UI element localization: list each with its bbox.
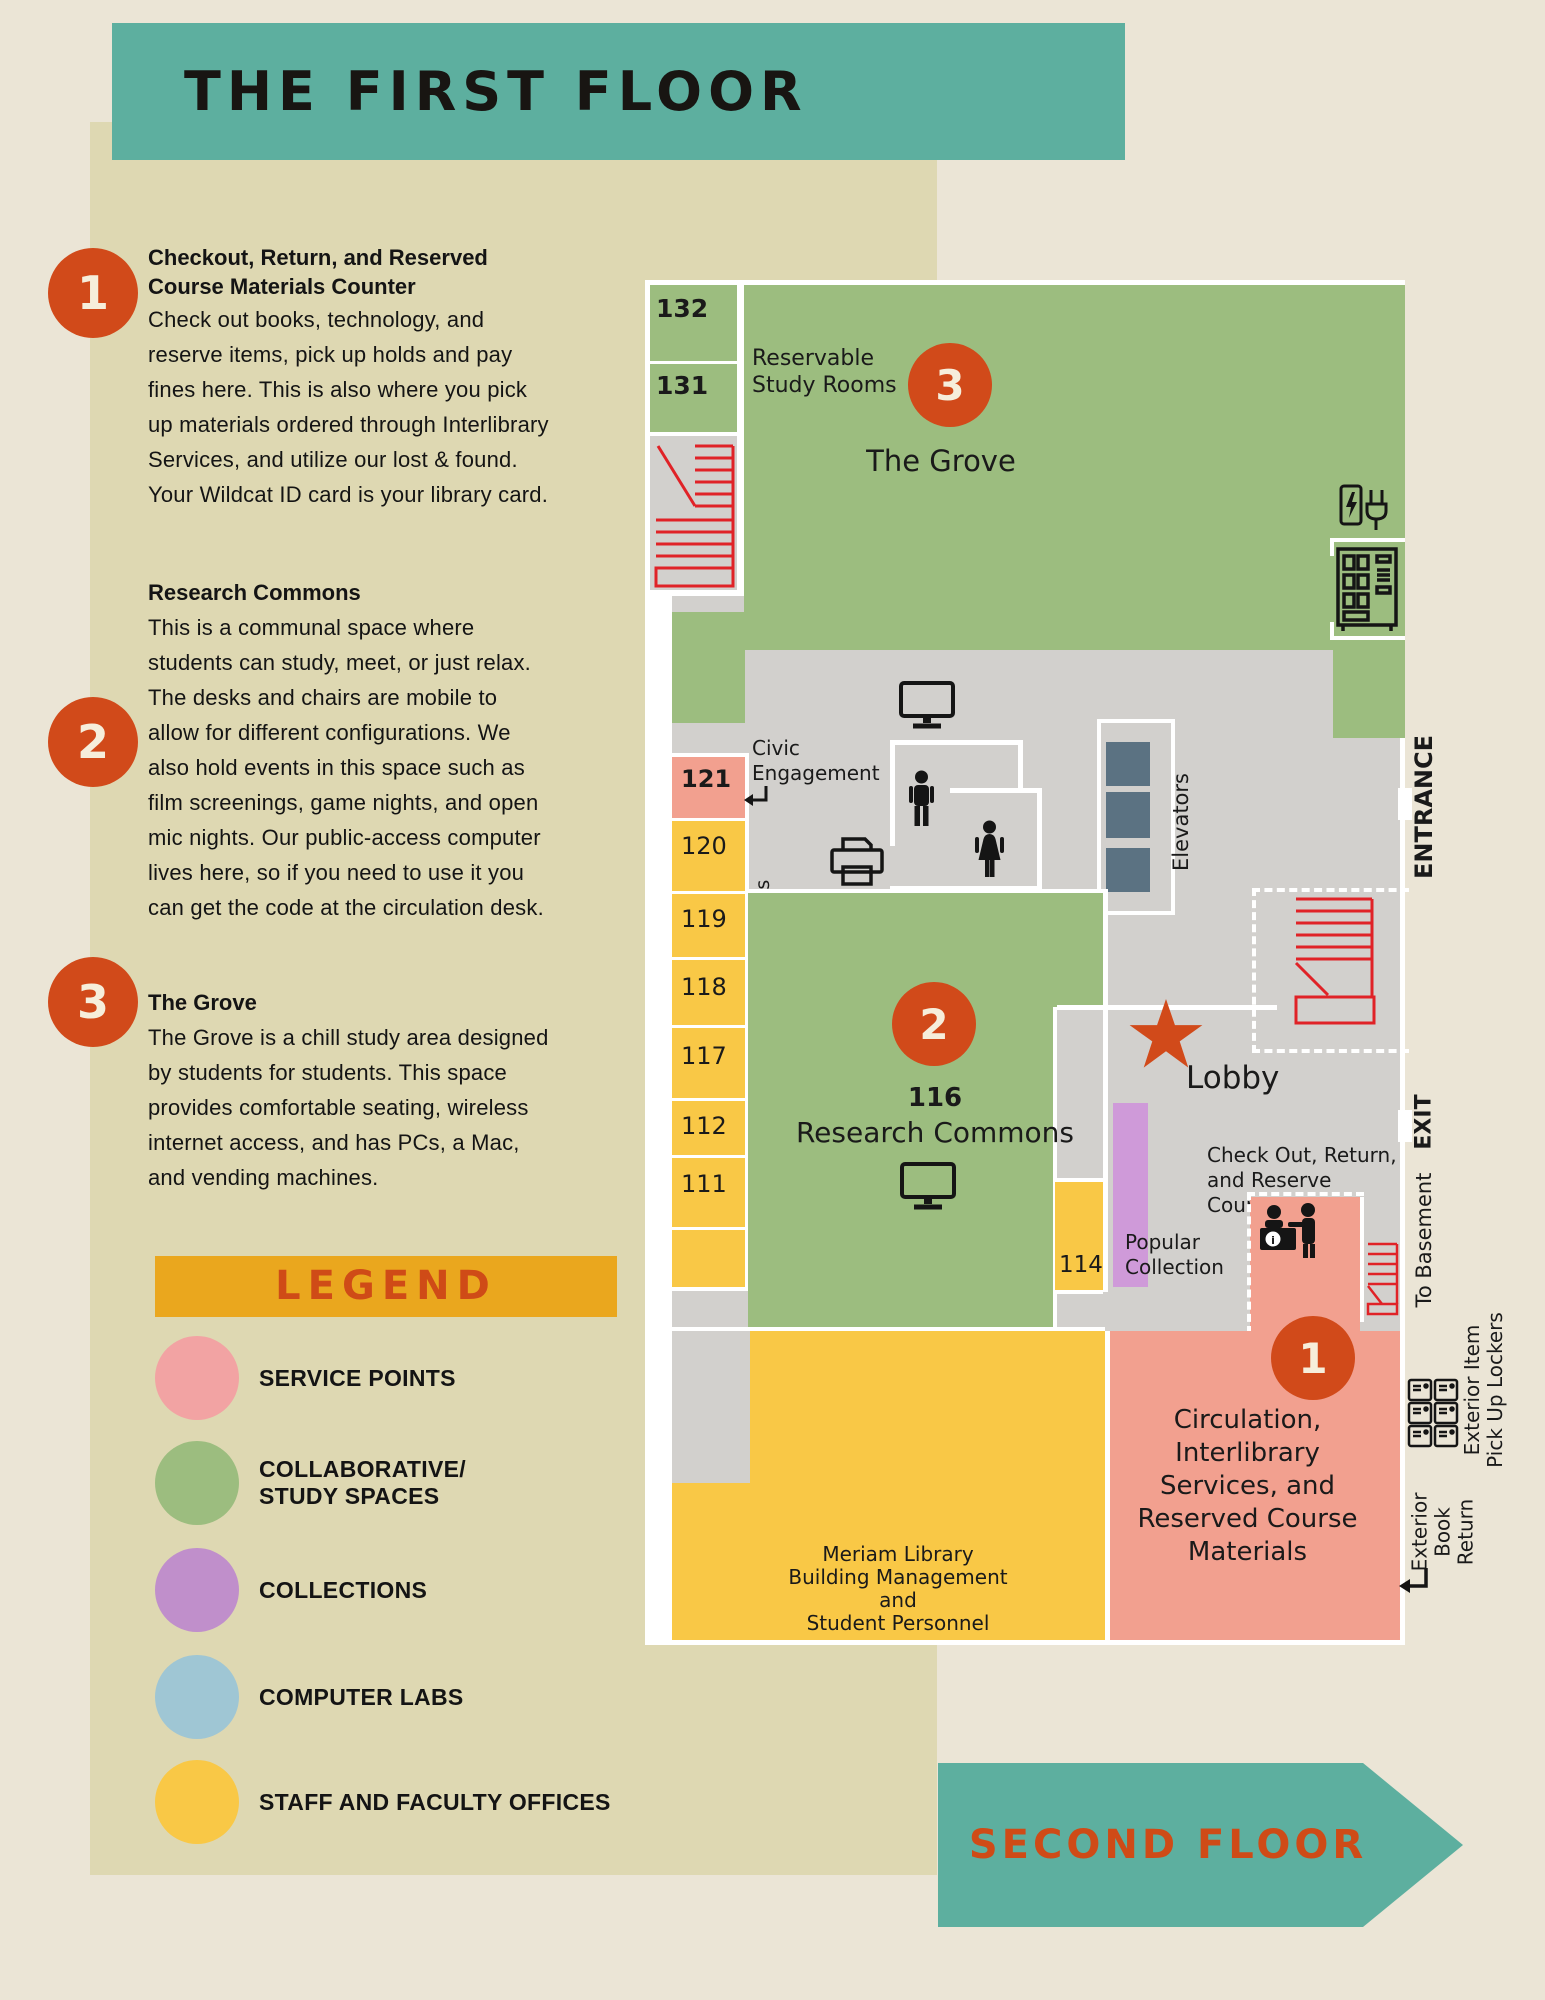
map-badge-1-number: 1 xyxy=(1298,1334,1327,1383)
computer-icon xyxy=(899,1161,957,1211)
restroom-wall xyxy=(890,740,895,846)
man-icon xyxy=(908,770,935,832)
legend-bar: LEGEND xyxy=(155,1256,617,1317)
map-badge-2-number: 2 xyxy=(919,1000,948,1049)
the-grove-notch xyxy=(1333,650,1405,738)
vending-bracket-bottom xyxy=(1330,636,1405,640)
note-badge-3-number: 3 xyxy=(77,975,109,1029)
legend-item-label: COLLABORATIVE/STUDY SPACES xyxy=(259,1456,466,1510)
room-111-number: 111 xyxy=(681,1170,727,1198)
note-heading-3: The Grove xyxy=(148,988,538,1017)
vending-bracket-bottom-end xyxy=(1330,622,1334,640)
room-114-bottom-wall xyxy=(1055,1290,1103,1294)
exterior-lockers-label: Exterior ItemPick Up Lockers xyxy=(1461,1312,1507,1468)
map-badge-1: 1 xyxy=(1271,1316,1355,1400)
legend-item-label: COLLECTIONS xyxy=(259,1577,427,1604)
elevator-shaft xyxy=(1106,742,1150,786)
lockers-icon xyxy=(1407,1378,1459,1448)
exit-door-tab xyxy=(1398,1110,1412,1142)
legend-item-staff-offices: STAFF AND FACULTY OFFICES xyxy=(155,1760,625,1844)
restroom-wall xyxy=(1037,788,1042,891)
research-commons-notch xyxy=(1053,893,1103,1007)
room-121-number: 121 xyxy=(681,765,731,793)
vending-machine-icon xyxy=(1335,546,1401,634)
room-118-number: 118 xyxy=(681,973,727,1001)
to-basement-label: To Basement xyxy=(1412,1173,1436,1308)
civic-engagement-label: CivicEngagement xyxy=(752,736,880,786)
elevator-shaft xyxy=(1106,848,1150,892)
note-badge-2-number: 2 xyxy=(77,715,109,769)
exterior-book-return-label: ExteriorBookReturn xyxy=(1409,1493,1478,1572)
room-112-number: 112 xyxy=(681,1112,727,1140)
computer-labs-swatch xyxy=(155,1655,239,1739)
restroom-wall xyxy=(950,788,1042,793)
legend-title: LEGEND xyxy=(155,1256,617,1317)
note-body-2: This is a communal space where students … xyxy=(148,610,552,925)
popular-collection-label: PopularCollection xyxy=(1125,1230,1224,1280)
room-119-number: 119 xyxy=(681,905,727,933)
building-management-label: Meriam LibraryBuilding Management andStu… xyxy=(768,1543,1028,1635)
note-badge-1-number: 1 xyxy=(77,266,109,320)
svg-text:i: i xyxy=(1271,1234,1275,1247)
the-grove-area xyxy=(744,285,1405,650)
research-commons-label: Research Commons xyxy=(775,1116,1095,1149)
staff-offices-swatch xyxy=(155,1760,239,1844)
vending-bracket-top xyxy=(1330,538,1405,542)
map-badge-3-number: 3 xyxy=(935,361,964,410)
woman-icon xyxy=(973,820,1006,884)
note-body-3: The Grove is a chill study area designed… xyxy=(148,1020,552,1195)
legend-item-label: STAFF AND FACULTY OFFICES xyxy=(259,1789,611,1816)
second-floor-label: SECOND FLOOR xyxy=(938,1763,1398,1927)
stairwell-southwest-overlay xyxy=(672,1331,750,1483)
the-grove-label: The Grove xyxy=(861,444,1021,478)
stairs-icon xyxy=(1288,893,1383,1028)
note-badge-1: 1 xyxy=(48,248,138,338)
collaborative-swatch xyxy=(155,1441,239,1525)
elevator-shaft xyxy=(1106,792,1150,838)
room-131-number: 131 xyxy=(656,371,708,400)
green-study-block xyxy=(672,612,745,723)
charging-station-icon xyxy=(1338,478,1390,536)
entrance-label: ENTRANCE xyxy=(1410,735,1438,879)
map-badge-3: 3 xyxy=(908,343,992,427)
room-132-number: 132 xyxy=(656,294,708,323)
vending-bracket-top-end xyxy=(1330,538,1334,556)
room-116-number: 116 xyxy=(845,1083,1025,1113)
note-badge-2: 2 xyxy=(48,697,138,787)
office-room-unlabeled xyxy=(672,1230,745,1287)
room-117-number: 117 xyxy=(681,1042,727,1070)
service-points-swatch xyxy=(155,1336,239,1420)
return-arrow-icon xyxy=(1398,1566,1430,1596)
printer-icon xyxy=(828,836,886,888)
map-badge-2: 2 xyxy=(892,982,976,1066)
room-114-number: 114 xyxy=(1059,1252,1103,1278)
legend-item-label: SERVICE POINTS xyxy=(259,1365,456,1392)
restroom-wall xyxy=(1018,740,1023,793)
second-floor-arrow: SECOND FLOOR xyxy=(938,1763,1465,1927)
note-badge-3: 3 xyxy=(48,957,138,1047)
note-heading-1: Checkout, Return, and Reserved Course Ma… xyxy=(148,243,538,301)
legend-item-collaborative: COLLABORATIVE/STUDY SPACES xyxy=(155,1441,625,1525)
legend-item-service-points: SERVICE POINTS xyxy=(155,1336,625,1420)
elevators-label: Elevators xyxy=(1169,773,1193,871)
reservable-study-rooms-label: ReservableStudy Rooms xyxy=(752,345,897,399)
lobby-label: Lobby xyxy=(1186,1060,1279,1096)
legend-item-collections: COLLECTIONS xyxy=(155,1548,625,1632)
exit-label: EXIT xyxy=(1412,1094,1437,1149)
lobby-west-wall xyxy=(1103,889,1108,1292)
page-title: THE FIRST FLOOR xyxy=(112,23,1125,160)
legend-item-computer-labs: COMPUTER LABS xyxy=(155,1655,625,1739)
collections-swatch xyxy=(155,1548,239,1632)
return-arrow-icon xyxy=(744,786,770,808)
stairs-icon xyxy=(650,436,737,590)
stairs-icon xyxy=(1364,1240,1400,1318)
note-heading-2: Research Commons xyxy=(148,578,538,607)
title-banner: THE FIRST FLOOR xyxy=(112,23,1125,160)
room-120-number: 120 xyxy=(681,832,727,860)
restroom-wall xyxy=(890,740,1023,745)
computer-icon xyxy=(898,680,956,730)
circulation-label: Circulation,InterlibraryServices, andRes… xyxy=(1135,1404,1360,1569)
legend-item-label: COMPUTER LABS xyxy=(259,1684,464,1711)
service-desk-icon: i xyxy=(1258,1200,1326,1262)
note-body-1: Check out books, technology, and reserve… xyxy=(148,302,552,512)
